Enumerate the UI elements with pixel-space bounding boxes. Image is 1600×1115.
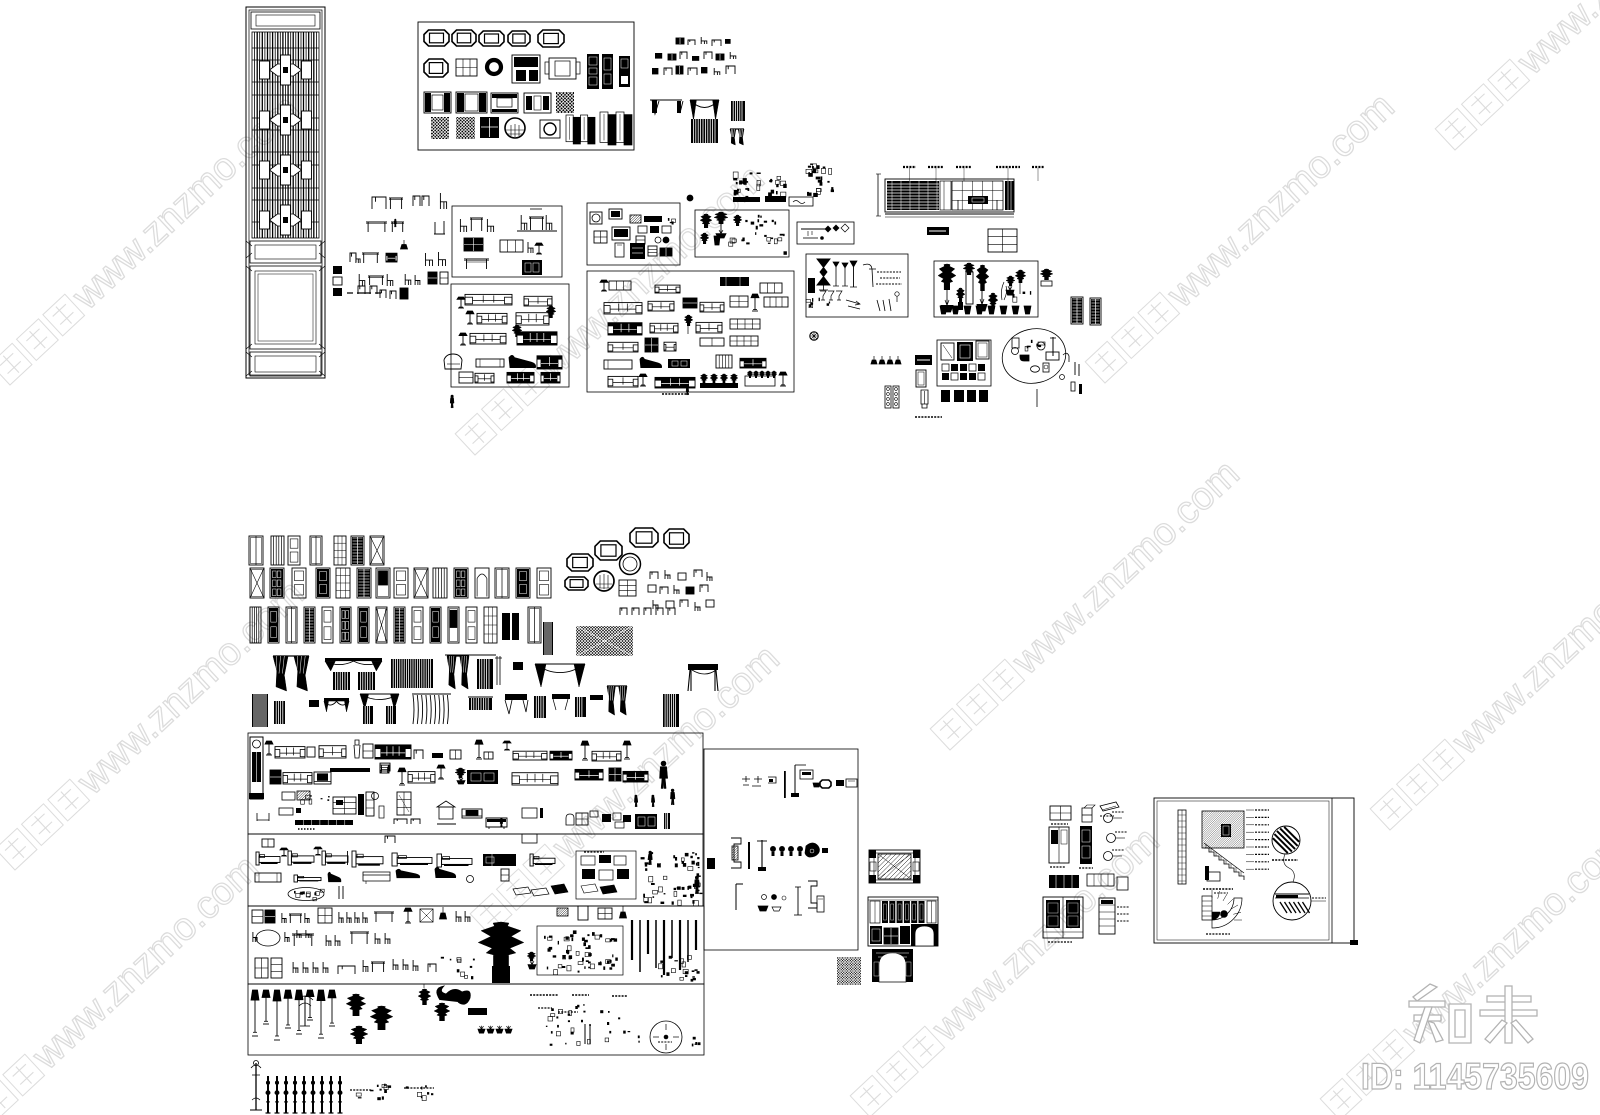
svg-text:www.znzmo.com: www.znzmo.com bbox=[1509, 0, 1600, 84]
svg-text:www.znzmo.com: www.znzmo.com bbox=[24, 847, 268, 1079]
svg-text:www.znzmo.com: www.znzmo.com bbox=[1004, 452, 1248, 684]
svg-text:www.znzmo.com: www.znzmo.com bbox=[1159, 85, 1403, 317]
svg-text:ID: 1145735609: ID: 1145735609 bbox=[1361, 1056, 1589, 1097]
svg-text:www.znzmo.com: www.znzmo.com bbox=[1444, 532, 1600, 764]
svg-text:www.znzmo.com: www.znzmo.com bbox=[924, 819, 1168, 1051]
